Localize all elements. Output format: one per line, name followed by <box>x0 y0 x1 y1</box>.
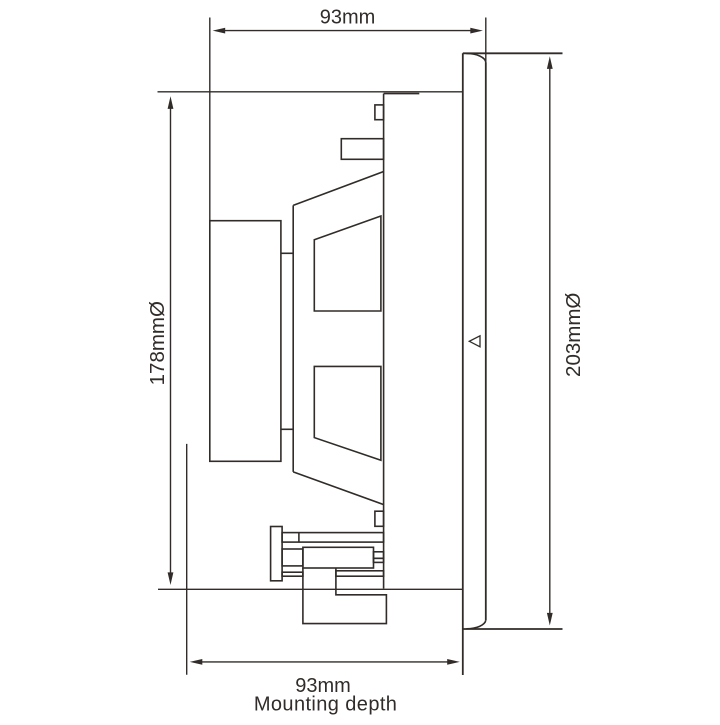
svg-text:203mmØ: 203mmØ <box>562 293 585 377</box>
svg-text:Mounting depth: Mounting depth <box>254 694 397 716</box>
svg-text:178mmØ: 178mmØ <box>146 301 169 385</box>
svg-text:93mm: 93mm <box>320 7 376 29</box>
